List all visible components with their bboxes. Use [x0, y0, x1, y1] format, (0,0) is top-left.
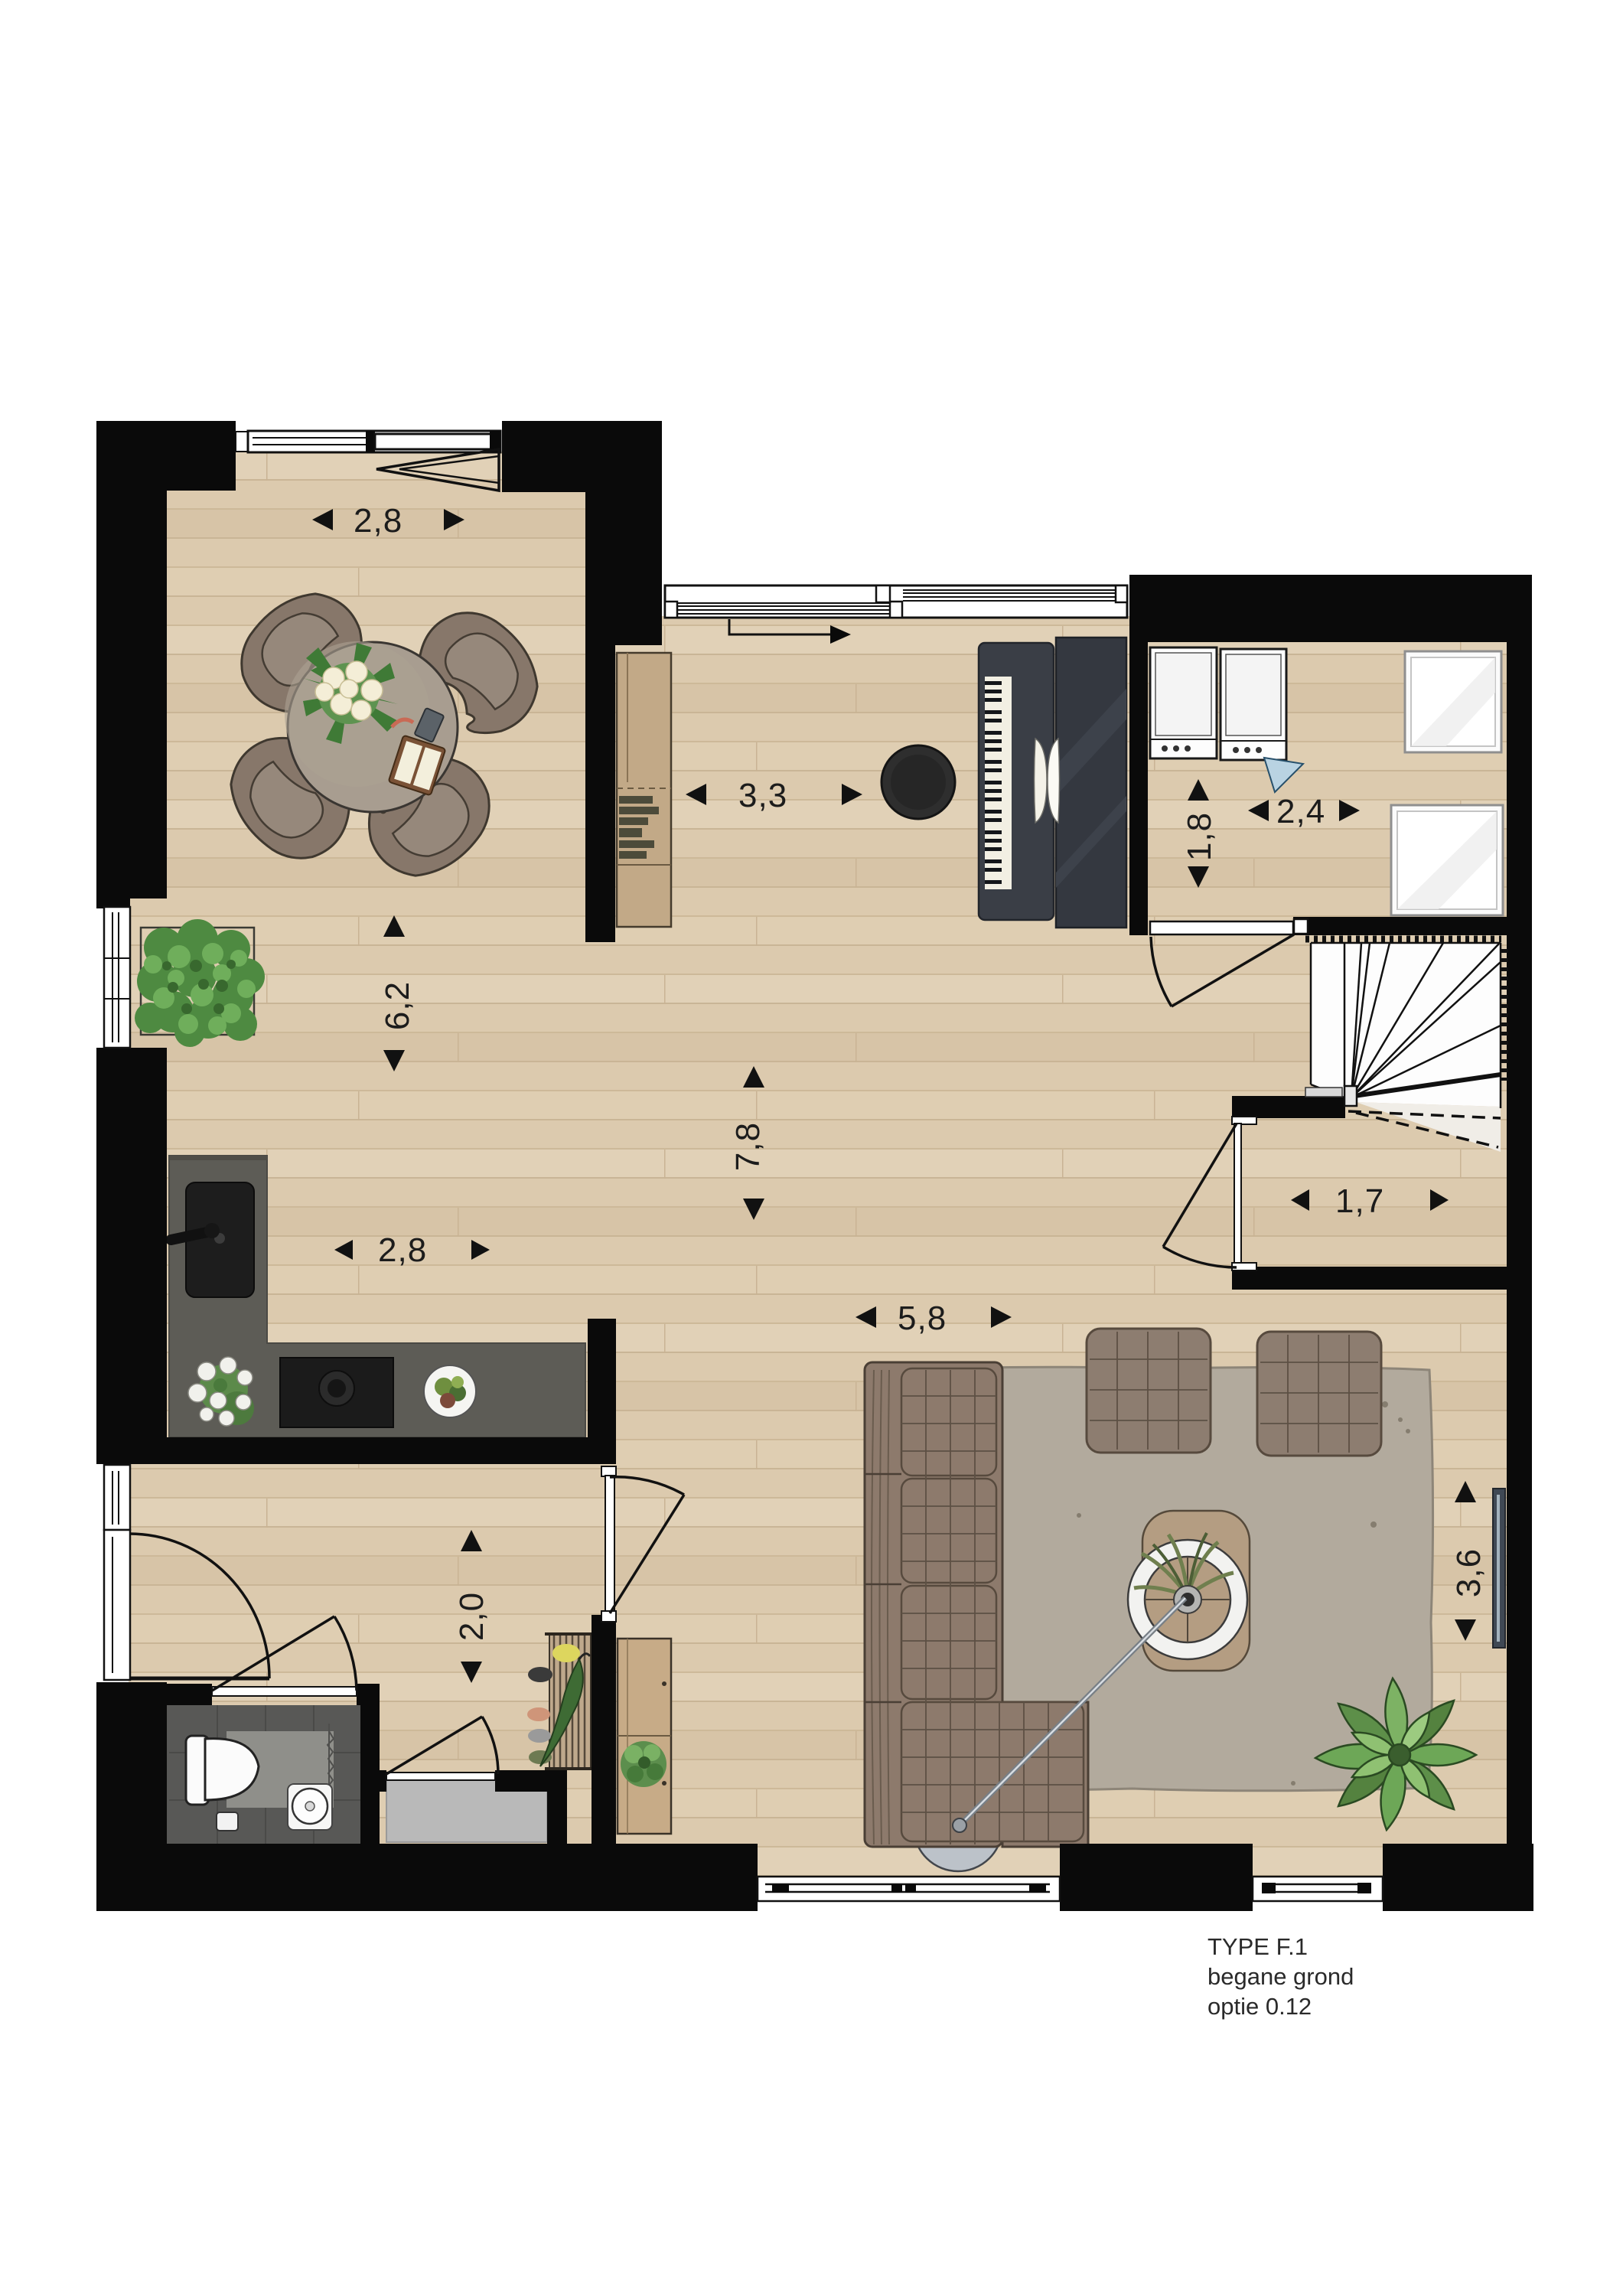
svg-text:5,8: 5,8	[898, 1300, 947, 1337]
svg-text:2,0: 2,0	[453, 1592, 490, 1641]
svg-text:1,7: 1,7	[1335, 1182, 1384, 1220]
svg-text:TYPE F.1: TYPE F.1	[1207, 1933, 1308, 1960]
svg-text:7,8: 7,8	[729, 1122, 767, 1171]
svg-text:begane grond: begane grond	[1207, 1963, 1354, 1990]
svg-text:1,8: 1,8	[1181, 812, 1218, 861]
svg-text:3,6: 3,6	[1450, 1548, 1488, 1597]
svg-text:3,3: 3,3	[738, 777, 787, 814]
svg-text:optie 0.12: optie 0.12	[1207, 1993, 1312, 2020]
svg-text:6,2: 6,2	[379, 981, 416, 1030]
svg-text:2,4: 2,4	[1276, 793, 1325, 830]
svg-text:2,8: 2,8	[378, 1231, 427, 1269]
svg-text:2,8: 2,8	[354, 502, 402, 540]
